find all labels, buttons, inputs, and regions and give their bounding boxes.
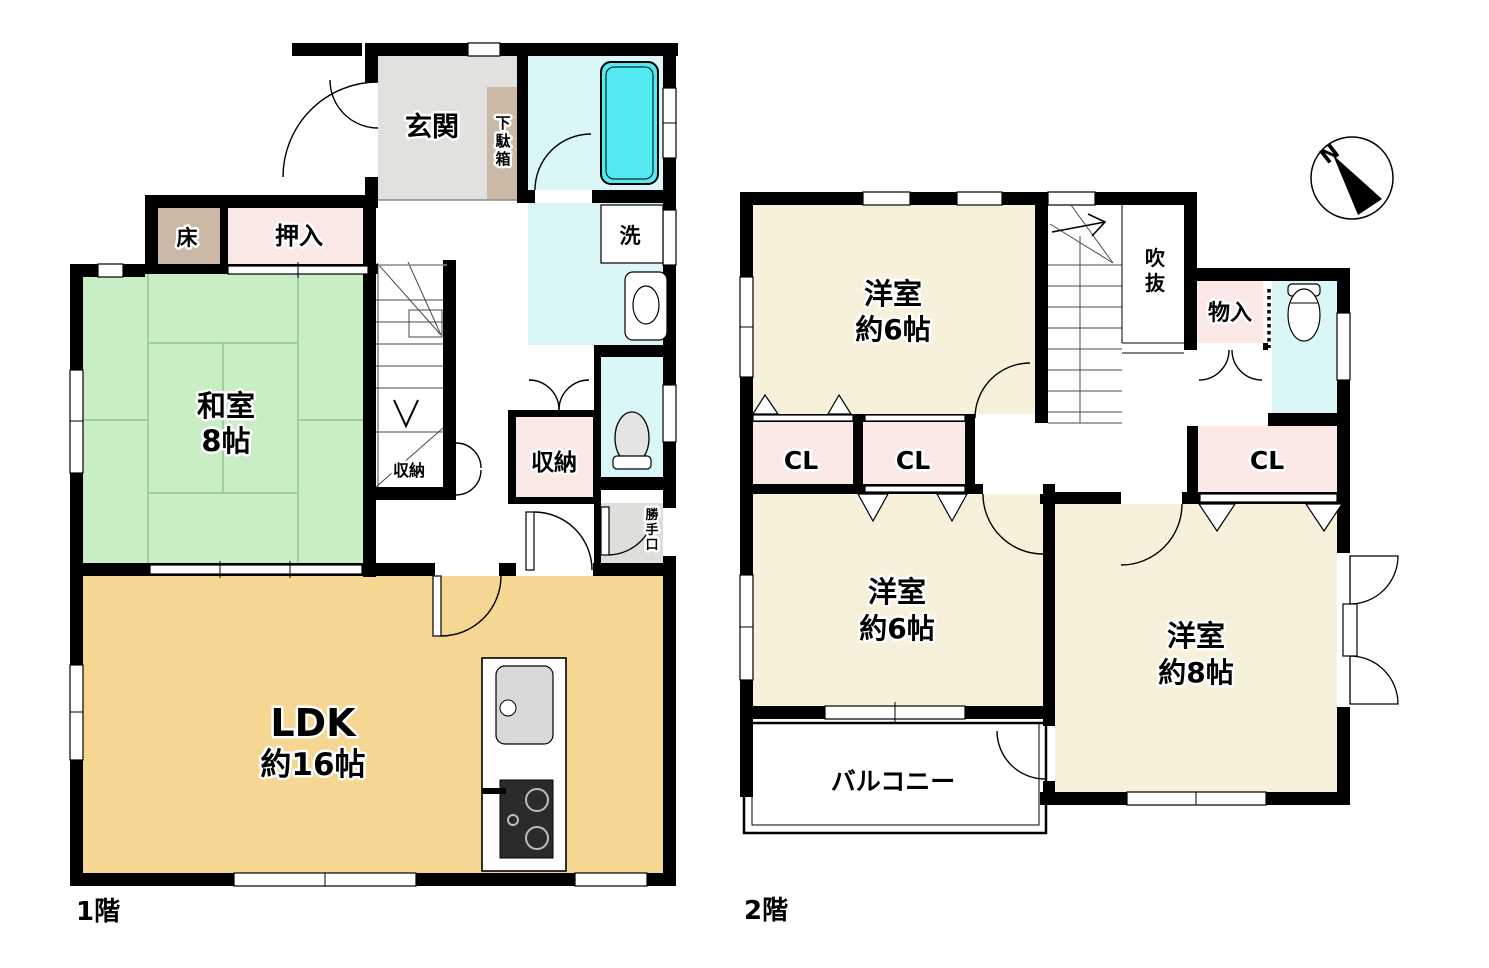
stair-up-arrow xyxy=(1052,214,1105,236)
ldk-door-opening xyxy=(435,563,499,576)
closet-right-label: CL xyxy=(1250,446,1284,475)
room-right-label-1: 洋室 xyxy=(1167,619,1225,653)
washitsu-label-1: 和室 xyxy=(197,389,255,423)
balcony-label: バルコニー xyxy=(831,767,956,796)
stairs-2f xyxy=(1048,205,1122,423)
svg-text:下: 下 xyxy=(495,114,510,132)
svg-text:勝: 勝 xyxy=(645,507,659,523)
bath-window xyxy=(663,88,676,158)
svg-text:箱: 箱 xyxy=(495,150,510,168)
hall-storage-door-arc-2 xyxy=(559,380,589,410)
hall-storage-door-arc-1 xyxy=(529,380,559,410)
room-top-window-1 xyxy=(863,192,910,205)
oshiire-label: 押入 xyxy=(275,222,323,250)
hall-ldk-door xyxy=(526,512,592,570)
svg-text:抜: 抜 xyxy=(1145,271,1166,295)
room-top-window-2 xyxy=(957,192,1002,205)
monoire-door-arc-2 xyxy=(1232,350,1262,380)
toilet1f-fixture xyxy=(613,412,651,469)
toilet1f-window xyxy=(663,385,676,442)
toilet2f-fixture xyxy=(1288,284,1320,341)
room-bl-door-opening xyxy=(983,484,1043,494)
svg-text:吹: 吹 xyxy=(1145,246,1166,270)
kitchen-stove xyxy=(500,780,553,858)
room-right-label-2: 約8帖 xyxy=(1158,656,1233,689)
monoire-label: 物入 xyxy=(1208,300,1252,326)
floor-plan-svg: 玄関 下 駄 箱 床 押入 和室 8帖 収納 収納 洗 勝 手 口 LDK 約1… xyxy=(0,0,1489,968)
washitsu-label-2: 8帖 xyxy=(201,424,250,458)
toilet2f-window xyxy=(1337,313,1350,380)
ldk-label-1: LDK xyxy=(270,701,357,745)
shoe-cabinet-label: 下 駄 箱 xyxy=(495,114,511,168)
closet-mid-label: CL xyxy=(896,446,930,475)
room-right-door-opening xyxy=(1121,492,1182,504)
washitsu-top-window xyxy=(98,264,123,277)
entrance-label: 玄関 xyxy=(405,111,459,143)
void-label: 吹 抜 xyxy=(1145,246,1166,295)
floor1-title: 1階 xyxy=(76,897,120,927)
ldk-left-window xyxy=(70,665,83,760)
bath-door-opening xyxy=(535,190,592,203)
laundry-label: 洗 xyxy=(620,224,641,248)
bay-window xyxy=(1343,556,1398,704)
washbasin xyxy=(625,272,667,340)
room-bl-left-window xyxy=(740,575,753,680)
room-bl-label-2: 約6帖 xyxy=(859,612,934,645)
stairs-1f xyxy=(376,262,443,487)
room-top-left-window xyxy=(740,277,753,377)
monoire-door-opening xyxy=(1197,343,1263,350)
room-top-label-2: 約6帖 xyxy=(855,313,930,346)
room-right-bottom-window xyxy=(1127,792,1266,805)
stair-top-window xyxy=(1048,192,1095,205)
floor-plan-canvas: 玄関 下 駄 箱 床 押入 和室 8帖 収納 収納 洗 勝 手 口 LDK 約1… xyxy=(0,0,1489,968)
ldk-label-2: 約16帖 xyxy=(260,747,365,783)
front-door-main-arc xyxy=(283,82,378,177)
closet-left-label: CL xyxy=(784,446,818,475)
backdoor-exit-opening xyxy=(663,508,676,556)
bathtub xyxy=(601,62,658,184)
ldk-bottom-window-1 xyxy=(234,873,416,886)
svg-text:口: 口 xyxy=(645,538,658,553)
washitsu-left-window xyxy=(70,370,83,473)
room-top-door-opening xyxy=(975,414,1035,422)
counter-edge xyxy=(482,788,506,794)
stair-down-arrow xyxy=(394,400,418,426)
ldk-bottom-window-2 xyxy=(575,873,647,886)
floor2-plan: 洋室 約6帖 吹 抜 物入 CL CL CL 洋室 約6帖 洋室 約8帖 バルコ… xyxy=(740,192,1398,926)
svg-text:手: 手 xyxy=(645,522,658,538)
stair-storage-door-arc-2 xyxy=(456,470,481,495)
svg-text:駄: 駄 xyxy=(495,132,511,150)
stair-storage-door-arc-1 xyxy=(456,443,481,468)
backdoor-label: 勝 手 口 xyxy=(645,507,659,553)
ldk-floor xyxy=(83,576,663,873)
compass: N xyxy=(1311,137,1393,219)
tokonoma-label: 床 xyxy=(177,226,198,250)
washroom-window xyxy=(663,210,676,265)
hall-storage-label: 収納 xyxy=(531,449,577,476)
floor2-title: 2階 xyxy=(744,896,788,926)
room-top-label-1: 洋室 xyxy=(864,277,922,311)
room-bl-label-1: 洋室 xyxy=(868,575,926,609)
balcony-door-arc xyxy=(997,731,1045,779)
floor1-plan: 玄関 下 駄 箱 床 押入 和室 8帖 収納 収納 洗 勝 手 口 LDK 約1… xyxy=(70,43,678,927)
front-door-opening xyxy=(365,82,378,177)
stair-storage-label: 収納 xyxy=(393,461,425,480)
kitchen-counter xyxy=(482,658,566,871)
monoire-door-arc-1 xyxy=(1199,350,1229,380)
kitchen-sink xyxy=(496,666,553,744)
entrance-window xyxy=(468,43,500,56)
